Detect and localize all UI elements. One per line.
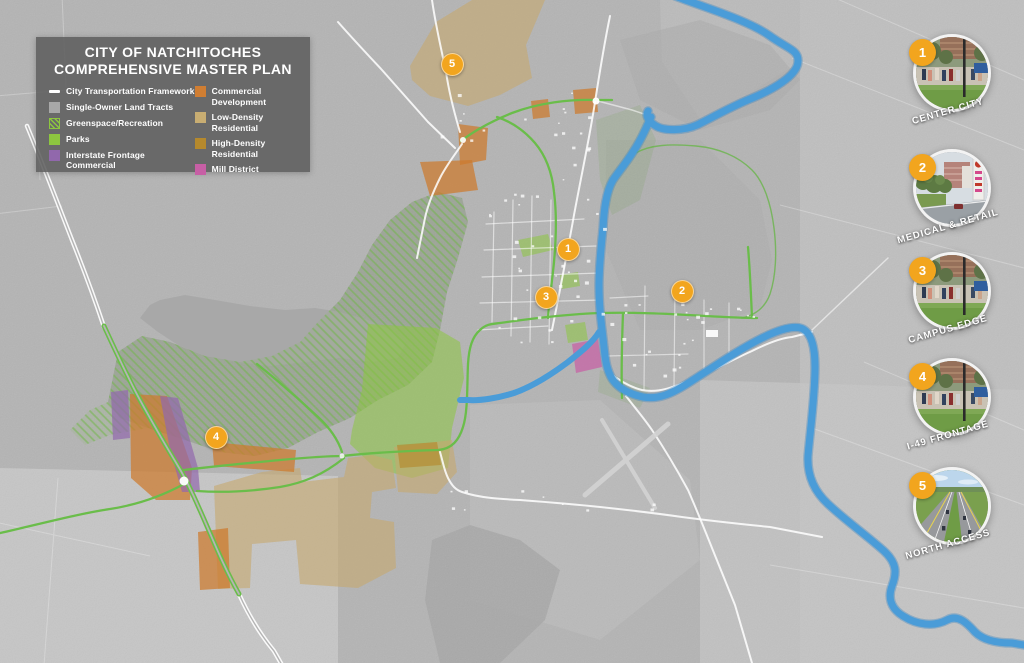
map-marker-2[interactable]: 2 — [671, 280, 694, 303]
map-marker-1[interactable]: 1 — [557, 238, 580, 261]
callout-badge-3[interactable]: 3 — [909, 257, 936, 284]
callout-badge-1[interactable]: 1 — [909, 39, 936, 66]
legend-item: Commercial Development — [195, 86, 302, 107]
callout-badge-4[interactable]: 4 — [909, 363, 936, 390]
legend-item: Interstate Frontage Commercial — [49, 150, 195, 171]
map-title-line1: CITY OF NATCHITOCHES — [36, 44, 310, 61]
map-marker-5[interactable]: 5 — [441, 53, 464, 76]
legend-column-left: City Transportation FrameworkSingle-Owne… — [49, 86, 195, 180]
legend-swatch-square — [195, 112, 206, 123]
map-title: CITY OF NATCHITOCHES COMPREHENSIVE MASTE… — [36, 37, 310, 77]
legend-swatch-line — [49, 90, 60, 93]
legend-swatch-square — [49, 102, 60, 113]
legend-swatch-square — [195, 138, 206, 149]
master-plan-map: CITY OF NATCHITOCHES COMPREHENSIVE MASTE… — [0, 0, 1024, 663]
legend-item: High-Density Residential — [195, 138, 302, 159]
legend-columns: City Transportation FrameworkSingle-Owne… — [36, 77, 310, 180]
legend-item: Greenspace/Recreation — [49, 118, 195, 129]
legend-label: High-Density Residential — [212, 138, 302, 159]
legend-swatch-hatch — [49, 118, 60, 129]
legend-item: Low-Density Residential — [195, 112, 302, 133]
map-marker-3[interactable]: 3 — [535, 286, 558, 309]
legend-label: Commercial Development — [212, 86, 302, 107]
legend-swatch-square — [195, 164, 206, 175]
legend-label: Mill District — [212, 164, 259, 175]
legend-label: Single-Owner Land Tracts — [66, 102, 173, 113]
legend-label: Interstate Frontage Commercial — [66, 150, 195, 171]
legend-item: Parks — [49, 134, 195, 145]
legend-item: Mill District — [195, 164, 302, 175]
legend-label: Parks — [66, 134, 90, 145]
legend-swatch-square — [49, 134, 60, 145]
callout-badge-2[interactable]: 2 — [909, 154, 936, 181]
legend-label: Greenspace/Recreation — [66, 118, 163, 129]
map-marker-4[interactable]: 4 — [205, 426, 228, 449]
legend-item: Single-Owner Land Tracts — [49, 102, 195, 113]
callout-badge-5[interactable]: 5 — [909, 472, 936, 499]
legend-label: City Transportation Framework — [66, 86, 195, 97]
legend-label: Low-Density Residential — [212, 112, 302, 133]
legend-swatch-square — [49, 150, 60, 161]
legend-panel: CITY OF NATCHITOCHES COMPREHENSIVE MASTE… — [36, 37, 310, 172]
legend-swatch-square — [195, 86, 206, 97]
legend-column-right: Commercial DevelopmentLow-Density Reside… — [195, 86, 302, 180]
legend-item: City Transportation Framework — [49, 86, 195, 97]
map-title-line2: COMPREHENSIVE MASTER PLAN — [36, 61, 310, 78]
high-density-zones — [397, 442, 441, 468]
